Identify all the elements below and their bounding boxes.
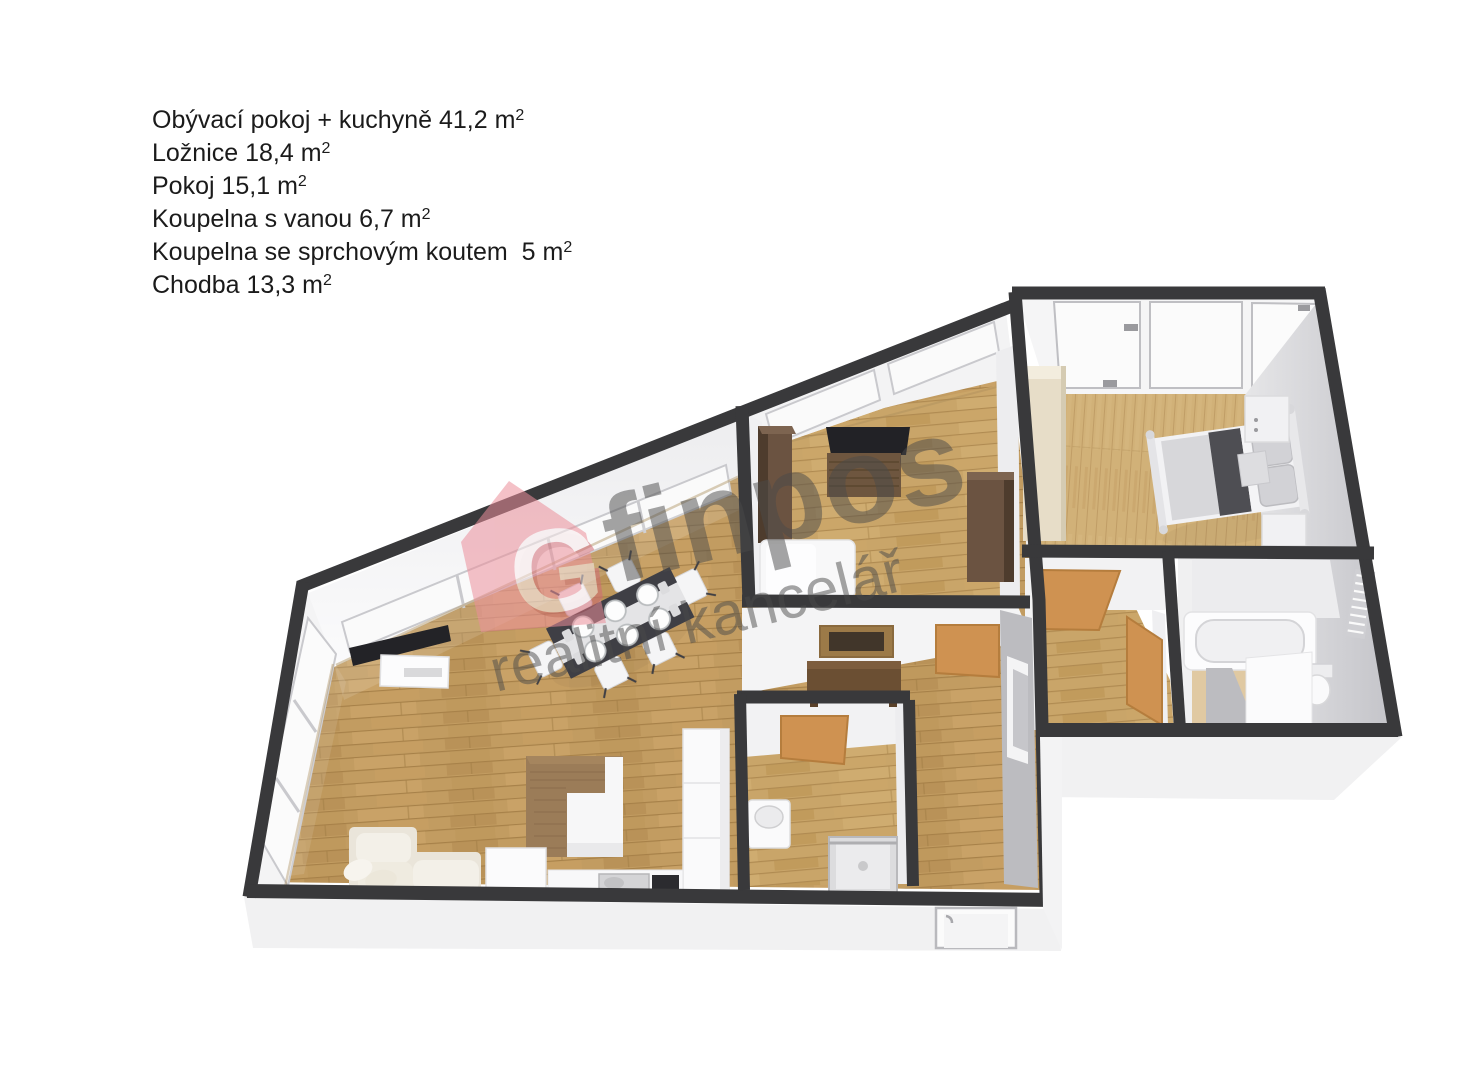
svg-text:Pokoj 15,1 m2: Pokoj 15,1 m2: [152, 172, 307, 200]
svg-text:Koupelna s vanou 6,7 m2: Koupelna s vanou 6,7 m2: [152, 205, 431, 233]
svg-text:Ložnice 18,4 m2: Ložnice 18,4 m2: [152, 139, 331, 167]
svg-text:Chodba 13,3 m2: Chodba 13,3 m2: [152, 271, 332, 299]
svg-text:Obývací pokoj + kuchyně 41,2 m: Obývací pokoj + kuchyně 41,2 m2: [152, 106, 524, 134]
svg-text:Koupelna se sprchovým koutem: Koupelna se sprchovým koutem 5 m2: [152, 238, 572, 266]
